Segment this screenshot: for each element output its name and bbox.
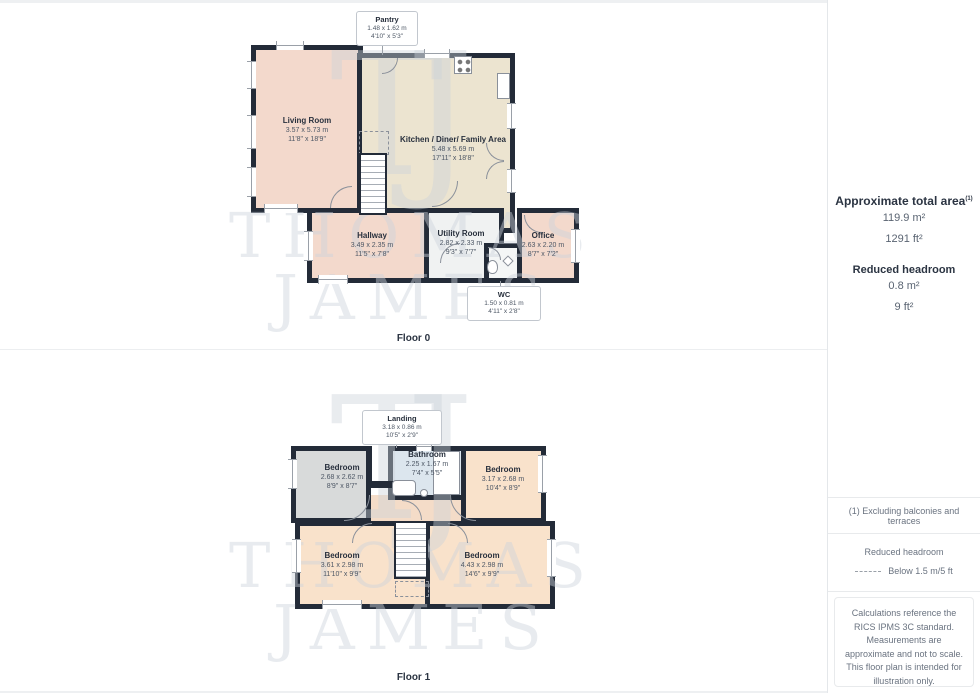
reduced-headroom-metric: 0.8 m² [828,276,980,297]
legend-text: Below 1.5 m/5 ft [888,566,953,576]
reduced-headroom-imperial: 9 ft² [828,297,980,318]
floor1-label: Floor 1 [0,672,827,683]
window [507,169,516,193]
room-label-hallway: Hallway 3.49 x 2.35 m 11'5" x 7'8" [322,231,422,260]
plan-canvas: TJ THOMAS JAMES TJ THOMAS JAMES [0,0,827,693]
footnote-card: (1) Excluding balconies and terraces [828,497,980,534]
window [247,167,256,197]
section-divider [0,349,827,350]
callout-landing: Landing 3.18 x 0.86 m 10'5" x 2'9" [362,410,442,445]
disclaimer-card: Calculations reference the RICS IPMS 3C … [834,597,974,687]
window [318,275,348,284]
callout-line [382,45,383,55]
footnote-marker: (1) [965,196,972,202]
basin-icon [420,489,428,497]
sink-counter-icon [497,73,510,99]
legend-card: Reduced headroom Below 1.5 m/5 ft [828,534,980,592]
bathtub-icon [392,480,416,496]
toilet-icon [487,260,498,274]
room-label-bedroom-bl: Bedroom 3.61 x 2.98 m 11'10" x 9'9" [292,551,392,580]
window [322,600,362,609]
disclaimer-text: Calculations reference the RICS IPMS 3C … [843,607,965,688]
stairs [394,521,428,579]
window [247,61,256,89]
legend-title: Reduced headroom [828,547,980,557]
room-label-bedroom-br: Bedroom 4.43 x 2.98 m 14'6" x 9'9" [432,551,532,580]
window [547,539,556,577]
window [507,103,516,129]
callout-wc: WC 1.50 x 0.81 m 4'11" x 2'8" [467,286,541,321]
window [247,115,256,149]
window [304,231,313,261]
window [424,49,450,58]
floor0-label: Floor 0 [0,333,827,344]
footnote-text: (1) Excluding balconies and terraces [840,506,968,526]
window [276,41,304,50]
dashed-line-icon [855,571,881,572]
total-area-block: Approximate total area(1) 119.9 m² 1291 … [828,194,980,318]
room-label-office: Office 2.63 x 2.20 m 8'7" x 7'2" [493,231,593,260]
info-sidebar: Approximate total area(1) 119.9 m² 1291 … [827,0,980,693]
room-label-bedroom-tr: Bedroom 3.17 x 2.68 m 10'4" x 8'9" [453,465,553,494]
floorplan-page: TJ THOMAS JAMES TJ THOMAS JAMES [0,0,980,693]
reduced-headroom-title: Reduced headroom [828,264,980,276]
total-area-imperial: 1291 ft² [828,229,980,250]
stove-icon [454,56,472,74]
window [264,204,298,213]
reduced-headroom-area [395,581,429,597]
room-label-living: Living Room 3.57 x 5.73 m 11'8" x 18'9" [257,116,357,145]
legend-row: Below 1.5 m/5 ft [828,566,980,576]
room-label-kitchen: Kitchen / Diner/ Family Area 5.48 x 5.69… [378,135,528,164]
total-area-title: Approximate total area(1) [828,194,980,208]
callout-pantry: Pantry 1.48 x 1.62 m 4'10" x 5'3" [356,11,418,46]
total-area-metric: 119.9 m² [828,208,980,229]
